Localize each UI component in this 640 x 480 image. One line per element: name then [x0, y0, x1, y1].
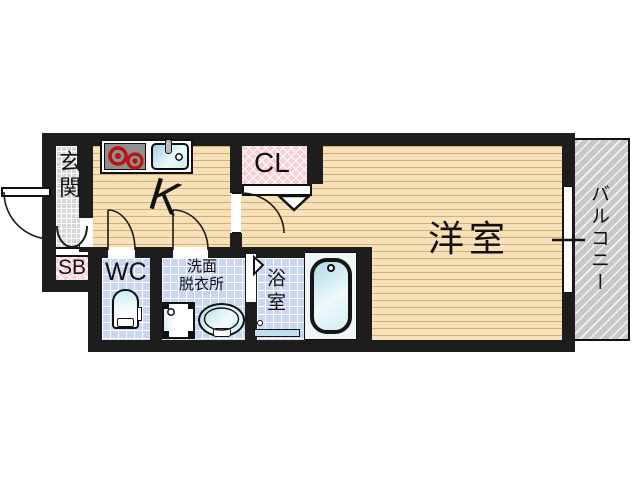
wall-cl-right — [307, 133, 323, 184]
wall-wc-left — [88, 247, 102, 352]
washer-corner — [188, 331, 194, 337]
washer-corner — [188, 303, 194, 309]
stove-icon — [104, 143, 146, 170]
floorplan: 玄関 SB K CL 洋室 バルコニー WC 洗面 脱衣所 浴室 — [0, 0, 640, 480]
opening-washroom-door — [173, 247, 208, 258]
washer-corner — [163, 331, 169, 337]
label-genkan: 玄関 — [57, 150, 80, 202]
bathtub-drain — [327, 264, 335, 272]
opening-wc-door — [108, 247, 135, 258]
balcony-window — [563, 186, 573, 293]
wall-bath-right — [357, 247, 372, 352]
opening-genkan-hall — [80, 218, 93, 247]
label-bathroom: 浴室 — [264, 268, 284, 316]
wall-k-room-upper — [230, 133, 242, 193]
front-door-leaf — [1, 187, 51, 197]
label-shoebox: SB — [58, 257, 86, 279]
opening-room-door — [232, 192, 241, 234]
bathroom-door — [246, 254, 256, 302]
toilet-tank — [117, 318, 134, 327]
closet-door-band — [242, 184, 312, 196]
label-washroom-2: 脱衣所 — [179, 277, 224, 293]
label-closet: CL — [254, 148, 290, 177]
wall-genkan-right — [79, 146, 93, 218]
label-washroom-1: 洗面 — [187, 259, 217, 275]
wall-left — [42, 133, 56, 292]
label-western-room: 洋室 — [428, 220, 510, 258]
label-balcony: バルコニー — [588, 184, 608, 294]
shower-drain-dot — [257, 320, 263, 326]
toilet-handle — [137, 307, 142, 321]
wall-bottom — [88, 340, 575, 352]
washer-corner — [163, 303, 169, 309]
wall-wc-washroom — [150, 258, 162, 340]
basin-front — [213, 328, 231, 337]
shower-drain-bar — [254, 329, 300, 337]
faucet-icon — [165, 139, 172, 154]
label-wc: WC — [105, 259, 147, 285]
